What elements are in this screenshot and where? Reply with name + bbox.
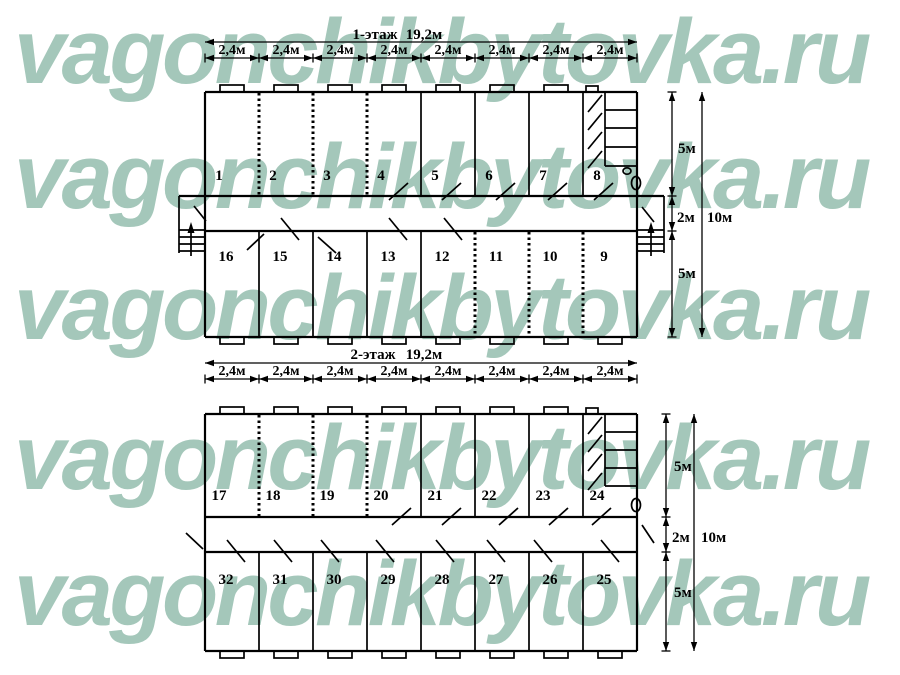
plan-line bbox=[642, 525, 654, 543]
segment-length-label: 2,4м bbox=[218, 364, 246, 379]
dim-arrow-icon bbox=[259, 55, 268, 61]
floor1-height-corridor: 2м bbox=[677, 210, 695, 226]
room-number: 29 bbox=[381, 572, 396, 588]
floor2-title: 2-этаж bbox=[351, 347, 396, 363]
floor2-height-bottom: 5м bbox=[674, 585, 692, 601]
dim-arrow-icon bbox=[669, 187, 675, 196]
room-number: 9 bbox=[600, 249, 608, 265]
dim-arrow-icon bbox=[412, 55, 421, 61]
segment-length-label: 2,4м bbox=[596, 364, 624, 379]
floor2-plan bbox=[186, 414, 654, 651]
plan-line bbox=[588, 113, 602, 130]
dim-arrow-icon bbox=[663, 543, 669, 552]
plan-line bbox=[623, 168, 631, 174]
floor1-plan bbox=[179, 92, 664, 337]
room-number: 2 bbox=[269, 168, 277, 184]
room-number: 1 bbox=[215, 168, 223, 184]
room-number: 3 bbox=[323, 168, 331, 184]
up-arrow-icon bbox=[188, 222, 195, 233]
room-number: 23 bbox=[536, 488, 551, 504]
room-number: 20 bbox=[374, 488, 389, 504]
room-number: 12 bbox=[435, 249, 450, 265]
room-number: 6 bbox=[485, 168, 493, 184]
dim-arrow-icon bbox=[529, 376, 538, 382]
room-number: 13 bbox=[381, 249, 396, 265]
dim-arrow-icon bbox=[574, 376, 583, 382]
floor2-height-total: 10м bbox=[701, 530, 726, 546]
segment-length-label: 2,4м bbox=[272, 364, 300, 379]
dim-arrow-icon bbox=[663, 642, 669, 651]
floor2-total-length: 19,2м bbox=[406, 347, 442, 363]
dim-arrow-icon bbox=[691, 414, 697, 423]
segment-length-label: 2,4м bbox=[488, 364, 516, 379]
dim-arrow-icon bbox=[574, 55, 583, 61]
dim-arrow-icon bbox=[475, 55, 484, 61]
floor1-height-bottom: 5м bbox=[678, 266, 696, 282]
dim-arrow-icon bbox=[529, 55, 538, 61]
floor1-staircase-icon bbox=[588, 92, 637, 168]
plan-line bbox=[548, 183, 567, 200]
segment-length-label: 2,4м bbox=[326, 364, 354, 379]
dim-arrow-icon bbox=[583, 376, 592, 382]
room-number: 17 bbox=[212, 488, 228, 504]
floor2-walls-bottom-row bbox=[259, 553, 583, 650]
dim-arrow-icon bbox=[466, 376, 475, 382]
dim-arrow-icon bbox=[313, 55, 322, 61]
segment-length-label: 2,4м bbox=[596, 43, 624, 58]
dim-arrow-icon bbox=[367, 376, 376, 382]
room-number: 26 bbox=[543, 572, 559, 588]
plan-line bbox=[588, 417, 602, 434]
room-number: 30 bbox=[327, 572, 342, 588]
floor1-walls-bottom-row bbox=[259, 232, 583, 336]
segment-length-label: 2,4м bbox=[434, 43, 462, 58]
dim-arrow-icon bbox=[358, 376, 367, 382]
dim-arrow-icon bbox=[628, 376, 637, 382]
floor1-walls-top-row bbox=[259, 93, 583, 195]
segment-length-label: 2,4м bbox=[488, 43, 516, 58]
plan-line bbox=[588, 454, 602, 471]
room-number: 22 bbox=[482, 488, 497, 504]
plan-drawing: 1-этаж 19,2м 5м 2м 5м 10м 2-этаж 19,2м 5… bbox=[0, 0, 900, 675]
dim-arrow-icon bbox=[628, 39, 637, 45]
floor1-height-total: 10м bbox=[707, 210, 732, 226]
dim-arrow-icon bbox=[367, 55, 376, 61]
dim-arrow-icon bbox=[205, 376, 214, 382]
dim-arrow-icon bbox=[669, 196, 675, 205]
dim-arrow-icon bbox=[699, 92, 705, 101]
dim-arrow-icon bbox=[669, 222, 675, 231]
plan-line bbox=[186, 533, 203, 549]
dim-arrow-icon bbox=[466, 55, 475, 61]
room-number: 15 bbox=[273, 249, 288, 265]
dim-arrow-icon bbox=[313, 376, 322, 382]
room-number: 16 bbox=[219, 249, 235, 265]
room-number: 18 bbox=[266, 488, 281, 504]
plan-line bbox=[594, 183, 613, 200]
room-number: 27 bbox=[489, 572, 505, 588]
plan-line bbox=[281, 218, 299, 240]
floor2-walls-top-row bbox=[259, 415, 583, 516]
plan-line bbox=[247, 234, 264, 250]
dim-arrow-icon bbox=[663, 508, 669, 517]
floor1-entry-steps-left bbox=[179, 196, 205, 256]
floor2-height-top: 5м bbox=[674, 459, 692, 475]
segment-length-label: 2,4м bbox=[380, 43, 408, 58]
dim-arrow-icon bbox=[304, 55, 313, 61]
room-number: 8 bbox=[593, 168, 601, 184]
up-arrow-icon bbox=[648, 222, 655, 233]
segment-length-label: 2,4м bbox=[272, 43, 300, 58]
dim-arrow-icon bbox=[669, 231, 675, 240]
room-number: 28 bbox=[435, 572, 450, 588]
plan-line bbox=[389, 218, 407, 240]
plan-line bbox=[588, 95, 602, 112]
dim-arrow-icon bbox=[475, 376, 484, 382]
floor1-title: 1-этаж bbox=[353, 27, 398, 43]
plan-line bbox=[496, 183, 515, 200]
floor1-door-marks bbox=[194, 183, 654, 253]
floor1-total-length: 19,2м bbox=[406, 27, 442, 43]
floor2-staircase-icon bbox=[588, 414, 637, 490]
floor1-height-top: 5м bbox=[678, 141, 696, 157]
plan-line bbox=[588, 151, 602, 168]
room-number: 32 bbox=[219, 572, 234, 588]
dim-arrow-icon bbox=[412, 376, 421, 382]
dim-arrow-icon bbox=[663, 552, 669, 561]
plan-line bbox=[444, 218, 462, 240]
room-number: 31 bbox=[273, 572, 288, 588]
dim-arrow-icon bbox=[628, 360, 637, 366]
plan-line bbox=[642, 207, 654, 222]
plan-line bbox=[588, 132, 602, 149]
dim-arrow-icon bbox=[520, 376, 529, 382]
floor-plan-page: { "watermark": { "text": "vagonchikbytov… bbox=[0, 0, 900, 675]
room-number: 5 bbox=[431, 168, 439, 184]
dim-arrow-icon bbox=[250, 376, 259, 382]
dim-arrow-icon bbox=[663, 517, 669, 526]
dim-arrow-icon bbox=[250, 55, 259, 61]
segment-length-label: 2,4м bbox=[542, 43, 570, 58]
dim-arrow-icon bbox=[421, 376, 430, 382]
dim-arrow-icon bbox=[358, 55, 367, 61]
room-number: 7 bbox=[539, 168, 547, 184]
room-number: 25 bbox=[597, 572, 612, 588]
floor1-entry-steps-right bbox=[637, 196, 664, 256]
dim-arrow-icon bbox=[691, 642, 697, 651]
room-number: 19 bbox=[320, 488, 335, 504]
dim-arrow-icon bbox=[663, 414, 669, 423]
segment-length-label: 2,4м bbox=[434, 364, 462, 379]
floor2-height-corridor: 2м bbox=[672, 530, 690, 546]
dim-arrow-icon bbox=[205, 360, 214, 366]
dim-arrow-icon bbox=[669, 328, 675, 337]
plan-line bbox=[442, 183, 461, 200]
floor2-generated: 2,4м2,4м2,4м2,4м2,4м2,4м2,4м2,4м17181920… bbox=[205, 360, 697, 658]
dim-arrow-icon bbox=[520, 55, 529, 61]
segment-length-label: 2,4м bbox=[326, 43, 354, 58]
floor1-generated: 2,4м2,4м2,4м2,4м2,4м2,4м2,4м2,4м12345678… bbox=[205, 39, 705, 344]
dim-arrow-icon bbox=[628, 55, 637, 61]
dim-arrow-icon bbox=[205, 39, 214, 45]
segment-length-label: 2,4м bbox=[380, 364, 408, 379]
dim-arrow-icon bbox=[304, 376, 313, 382]
plan-line bbox=[588, 435, 602, 452]
segment-length-label: 2,4м bbox=[542, 364, 570, 379]
segment-length-label: 2,4м bbox=[218, 43, 246, 58]
dim-arrow-icon bbox=[259, 376, 268, 382]
dim-arrow-icon bbox=[421, 55, 430, 61]
room-number: 24 bbox=[590, 488, 606, 504]
room-number: 11 bbox=[489, 249, 503, 265]
room-number: 14 bbox=[327, 249, 343, 265]
plan-line bbox=[389, 183, 408, 200]
room-number: 21 bbox=[428, 488, 443, 504]
room-number: 4 bbox=[377, 168, 385, 184]
dim-arrow-icon bbox=[205, 55, 214, 61]
room-number: 10 bbox=[543, 249, 558, 265]
dim-arrow-icon bbox=[699, 328, 705, 337]
dim-arrow-icon bbox=[583, 55, 592, 61]
dim-arrow-icon bbox=[669, 92, 675, 101]
